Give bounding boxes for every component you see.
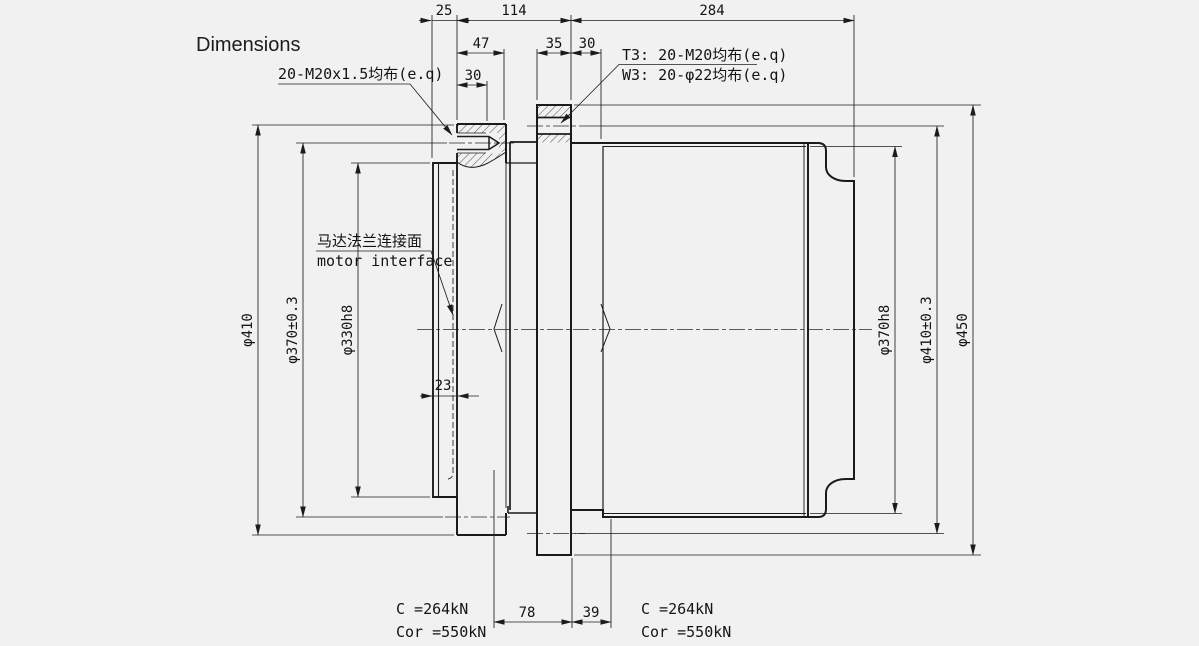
dim-284: 284: [699, 3, 724, 19]
rating-left-dynamic: C =264kN: [396, 600, 468, 618]
dia-330-left: φ330h8: [340, 305, 356, 356]
gearbox-section-drawing: Dimensions 20-M20x1.5均布(e.q) T3: 20-M20均…: [0, 0, 1199, 646]
dia-450-right: φ450: [955, 313, 971, 347]
leader-lines: [278, 65, 757, 316]
leader-left-bolts: [278, 84, 452, 135]
dia-370-left: φ370±0.3: [285, 296, 301, 363]
pilot-ring: [433, 163, 457, 497]
dia-410-left: φ410: [240, 313, 256, 347]
rating-right-dynamic: C =264kN: [641, 600, 713, 618]
gearbox-outline: [433, 105, 854, 555]
technical-drawing-page: Dimensions 20-M20x1.5均布(e.q) T3: 20-M20均…: [0, 0, 1199, 646]
dia-410-right: φ410±0.3: [919, 296, 935, 363]
dim-35: 35: [546, 36, 563, 52]
dim-30-depth: 30: [465, 68, 482, 84]
dim-30-step: 30: [579, 36, 596, 52]
dim-39: 39: [583, 605, 600, 621]
dim-114: 114: [501, 3, 526, 19]
rating-right-static: Cor =550kN: [641, 623, 731, 641]
main-housing: [571, 143, 854, 517]
dim-78: 78: [519, 605, 536, 621]
hidden-bolt-line: [448, 170, 453, 479]
callout-motor-interface-cn: 马达法兰连接面: [317, 232, 422, 250]
callout-t3: T3: 20-M20均布(e.q): [622, 46, 787, 64]
dim-23: 23: [435, 378, 452, 394]
housing-front: [506, 142, 537, 513]
page-title: Dimensions: [196, 34, 300, 56]
dia-370-right: φ370h8: [877, 305, 893, 356]
extension-lines: [252, 15, 981, 628]
dim-47: 47: [473, 36, 490, 52]
callout-motor-interface-en: motor interface: [317, 252, 452, 270]
bore-chamfer-marks: [494, 304, 610, 352]
mounting-flange: [537, 105, 571, 555]
callout-w3: W3: 20-φ22均布(e.q): [622, 66, 787, 84]
motor-flange-bottom: [457, 497, 506, 535]
dim-25: 25: [436, 3, 453, 19]
rating-left-static: Cor =550kN: [396, 623, 486, 641]
dimension-lines: [258, 21, 973, 623]
callout-left-bolts: 20-M20x1.5均布(e.q): [278, 65, 443, 83]
